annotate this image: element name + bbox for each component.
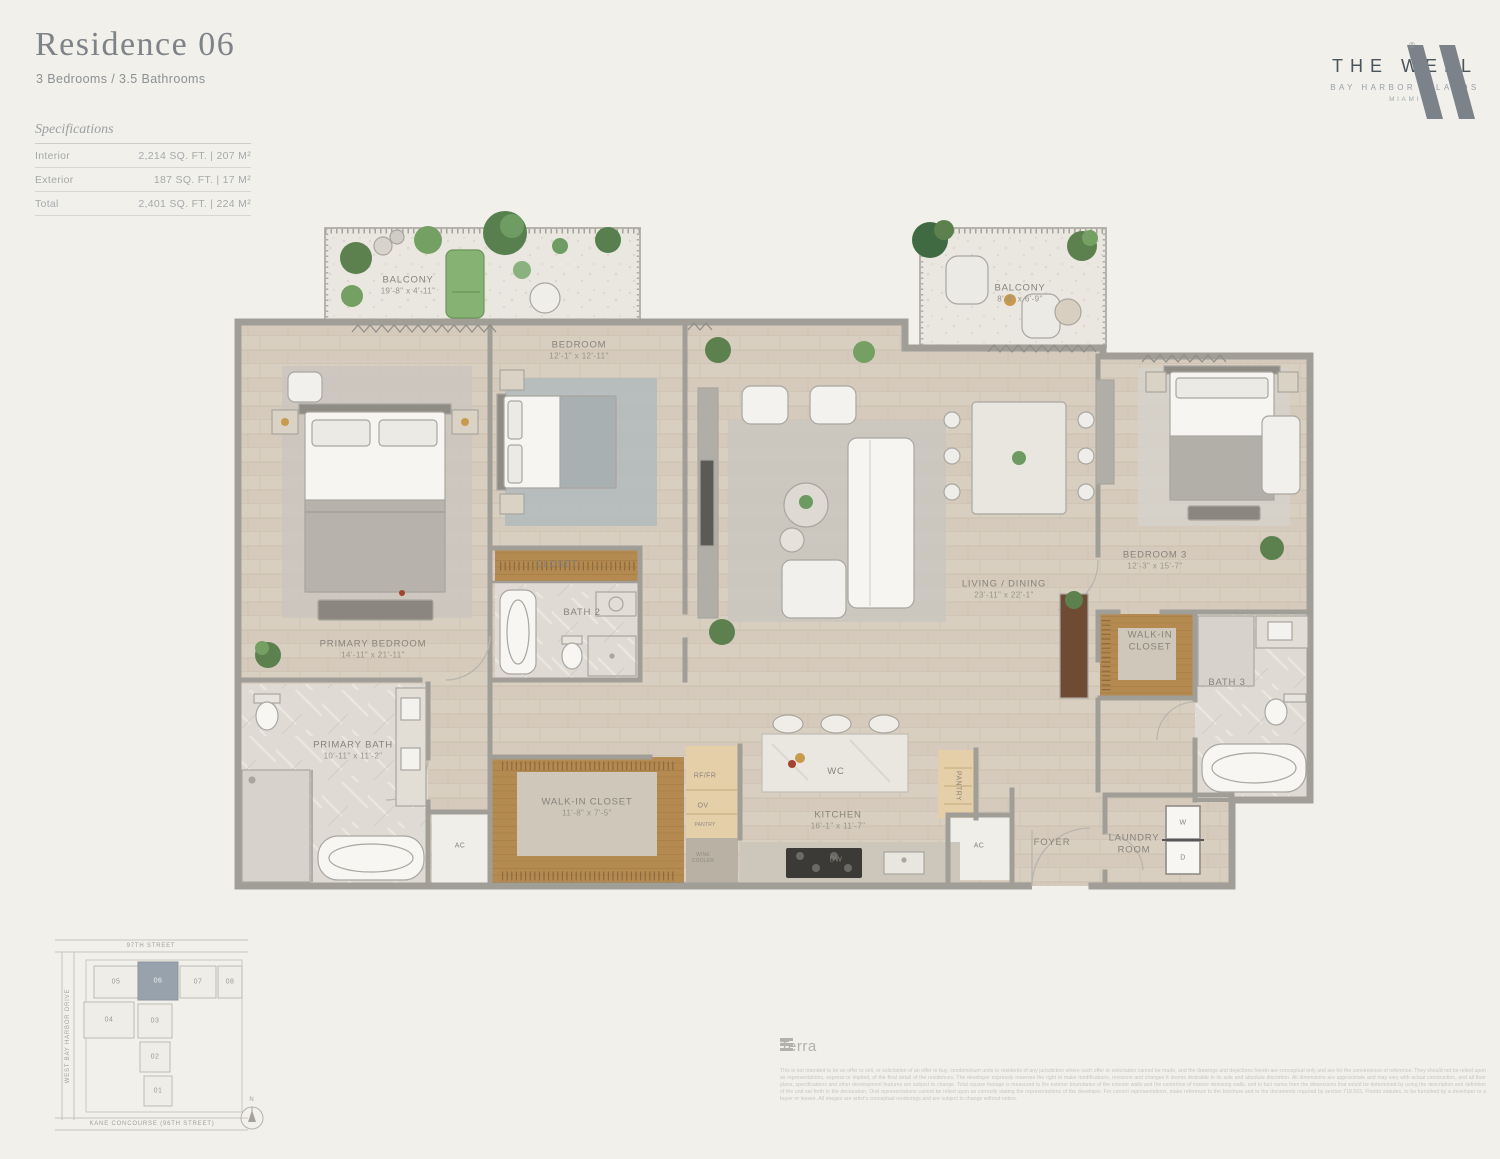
- brand-logo: ® THE WELL BAY HARBOR ISLANDS MIAMI: [1330, 30, 1480, 103]
- room-label-laundry: LAUNDRY ROOM: [1109, 833, 1160, 858]
- label-washer: W: [1179, 818, 1186, 827]
- specs-row-interior: Interior 2,214 SQ. FT. | 207 M²: [35, 144, 251, 168]
- siteplan-unit-08: 08: [226, 979, 235, 986]
- label-dishwasher: DW: [830, 855, 842, 864]
- label-wine-cooler: WINE COOLER: [692, 852, 714, 865]
- spec-label: Interior: [35, 150, 70, 162]
- room-label-balcony-1: BALCONY 19'-8" x 4'-11": [381, 275, 436, 298]
- label-ac-2: AC: [974, 841, 985, 850]
- siteplan-street-top: 97TH STREET: [127, 943, 176, 949]
- spec-value: 2,214 SQ. FT. | 207 M²: [138, 150, 251, 162]
- terra-logo: Terra: [780, 1038, 817, 1055]
- room-label-closet-2: CLOSET: [536, 559, 579, 571]
- north-indicator-label: N: [249, 1097, 254, 1103]
- page-subtitle: 3 Bedrooms / 3.5 Bathrooms: [36, 72, 206, 86]
- label-ac-1: AC: [455, 841, 466, 850]
- siteplan-unit-01: 01: [154, 1088, 163, 1095]
- room-label-kitchen: KITCHEN 16'-1" x 11'-7": [811, 810, 866, 833]
- label-pantry: PANTRY: [953, 771, 962, 801]
- legal-disclaimer-text: This is not intended to be an offer to s…: [780, 1068, 1486, 1103]
- terra-icon: [780, 1038, 793, 1051]
- siteplan-unit-04: 04: [105, 1017, 114, 1024]
- siteplan-unit-05: 05: [112, 979, 121, 986]
- siteplan-street-left: WEST BAY HARBOR DRIVE: [65, 989, 71, 1083]
- siteplan-street-bottom: KANE CONCOURSE (96TH STREET): [89, 1121, 214, 1127]
- room-label-bedroom-3: BEDROOM 3 12'-3" x 15'-7": [1123, 550, 1187, 573]
- room-label-bedroom-2: BEDROOM 12'-1" x 12'-11": [549, 340, 608, 363]
- room-label-walkin-closet-3: WALK-IN CLOSET: [1128, 630, 1173, 655]
- label-dryer: D: [1180, 853, 1185, 862]
- spec-value: 2,401 SQ. FT. | 224 M²: [138, 198, 251, 210]
- siteplan-unit-02: 02: [151, 1054, 160, 1061]
- site-plan-drawing: [55, 940, 263, 1130]
- floorplan-brochure-page: Residence 06 3 Bedrooms / 3.5 Bathrooms …: [0, 0, 1500, 1159]
- specs-row-exterior: Exterior 187 SQ. FT. | 17 M²: [35, 168, 251, 192]
- page-title: Residence 06: [35, 26, 235, 64]
- spec-label: Total: [35, 198, 59, 210]
- label-oven: OV: [698, 801, 709, 810]
- siteplan-unit-07: 07: [194, 979, 203, 986]
- room-label-bath-3: BATH 3: [1208, 677, 1245, 689]
- spec-value: 187 SQ. FT. | 17 M²: [154, 174, 251, 186]
- label-wc: WC: [827, 766, 844, 778]
- spec-label: Exterior: [35, 174, 74, 186]
- room-label-walkin-closet-primary: WALK-IN CLOSET 11'-8" x 7'-5": [541, 797, 632, 820]
- specifications-table: Specifications Interior 2,214 SQ. FT. | …: [35, 122, 251, 216]
- room-label-primary-bedroom: PRIMARY BEDROOM 14'-11" x 21'-11": [320, 639, 427, 662]
- label-pantry-cabinet: PANTRY: [694, 822, 715, 828]
- specs-row-total: Total 2,401 SQ. FT. | 224 M²: [35, 192, 251, 216]
- room-label-bath-2: BATH 2: [563, 607, 600, 619]
- room-label-living-dining: LIVING / DINING 23'-11" x 22'-1": [962, 579, 1046, 602]
- siteplan-unit-03: 03: [151, 1018, 160, 1025]
- room-label-primary-bath: PRIMARY BATH 10'-11" x 11'-2": [313, 740, 393, 763]
- room-label-foyer: FOYER: [1034, 837, 1071, 849]
- label-fridge-freezer: RF/FR: [694, 771, 717, 780]
- room-label-balcony-2: BALCONY 8'-6" x 6'-9": [994, 283, 1045, 306]
- specs-heading: Specifications: [35, 122, 251, 144]
- siteplan-unit-06-highlighted: 06: [154, 978, 163, 985]
- registered-mark: ®: [1409, 41, 1415, 50]
